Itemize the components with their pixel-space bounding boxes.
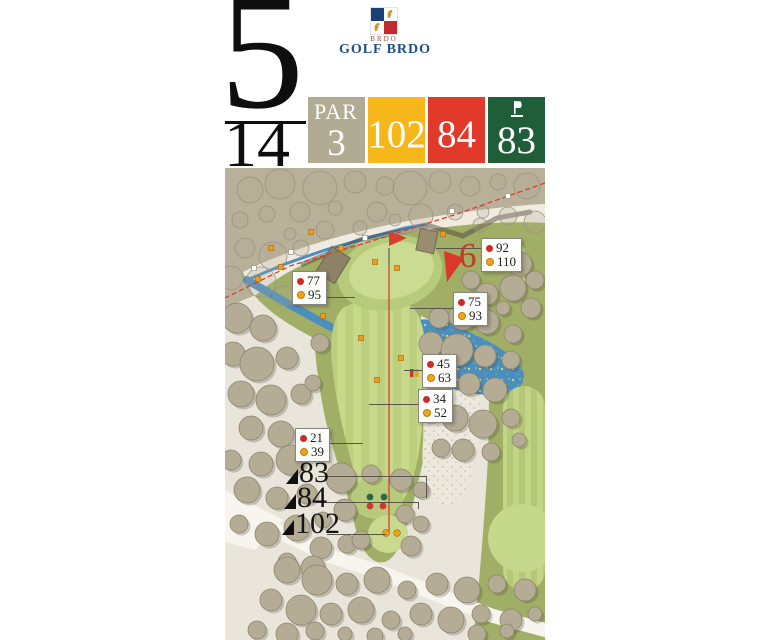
- red-tee-dot-icon: [297, 278, 304, 285]
- red-tee-distance-box: 84: [428, 97, 485, 163]
- par-box: PAR 3: [308, 97, 365, 163]
- club-emblem-icon: [511, 101, 523, 118]
- next-hole-number: 6: [459, 238, 477, 273]
- yellow-distance: 52: [434, 406, 447, 420]
- yellow-tee-dot-icon: [427, 374, 435, 382]
- green-tee-distance: 83: [497, 121, 536, 160]
- red-tee-dot-icon: [423, 396, 430, 403]
- red-tee-dot-icon: [486, 245, 493, 252]
- yellow-tee-dot-icon: [423, 409, 431, 417]
- green-tee-distance-box: 83: [488, 97, 545, 163]
- tee-triangle-icon: [282, 520, 294, 535]
- red-distance: 77: [307, 274, 320, 288]
- yellow-tee-dot-icon: [297, 291, 305, 299]
- red-distance: 21: [310, 431, 323, 445]
- crest-quarter-blue: [371, 8, 384, 21]
- red-distance: 34: [433, 392, 446, 406]
- tee-label-yellow: 102: [282, 509, 340, 539]
- red-tee-dot-icon: [458, 299, 465, 306]
- marker-line: [404, 370, 422, 371]
- red-distance: 75: [468, 295, 481, 309]
- crest-quarter-lion: [371, 21, 384, 34]
- yellow-tee-dot-icon: [300, 448, 308, 456]
- red-tee-dot-icon: [300, 435, 307, 442]
- distance-marker: 92 110: [481, 238, 522, 272]
- distance-marker: 45 63: [422, 354, 457, 388]
- par-label: PAR: [314, 99, 358, 125]
- yellow-tee-dot-icon: [486, 258, 494, 266]
- tee-line-83: [318, 476, 426, 477]
- red-tee-dot-icon: [427, 361, 434, 368]
- red-tee-distance: 84: [437, 115, 476, 154]
- crest-quarter-red: [384, 21, 397, 34]
- tee-line-83: [426, 476, 427, 498]
- distance-marker: 34 52: [418, 389, 453, 423]
- golf-hole-card: 5 14 BRDO GOLF BRDO PAR 3 102 84 83: [0, 0, 769, 640]
- tee-line-84: [418, 502, 419, 509]
- bridge-small: [416, 228, 438, 253]
- crest-quarter-lion: [384, 8, 397, 21]
- yellow-tee-distance-box: 102: [368, 97, 425, 163]
- par-value: 3: [327, 125, 346, 162]
- club-name: GOLF BRDO: [330, 42, 440, 58]
- red-distance: 45: [437, 357, 450, 371]
- yellow-tee-dot-icon: [458, 312, 466, 320]
- yellow-distance: 95: [308, 288, 321, 302]
- distance-marker: 75 93: [453, 292, 488, 326]
- club-crest-icon: [371, 8, 397, 34]
- marker-line: [369, 404, 418, 405]
- yellow-distance: 110: [497, 255, 516, 269]
- yellow-distance: 93: [469, 309, 482, 323]
- marker-line: [410, 308, 453, 309]
- yellow-distance: 63: [438, 371, 451, 385]
- yellow-tee-distance: 102: [367, 115, 426, 154]
- red-distance: 92: [496, 241, 509, 255]
- tee-line-84: [316, 502, 418, 503]
- tee-distance-text: 102: [295, 509, 340, 539]
- distance-marker: 77 95: [292, 271, 327, 305]
